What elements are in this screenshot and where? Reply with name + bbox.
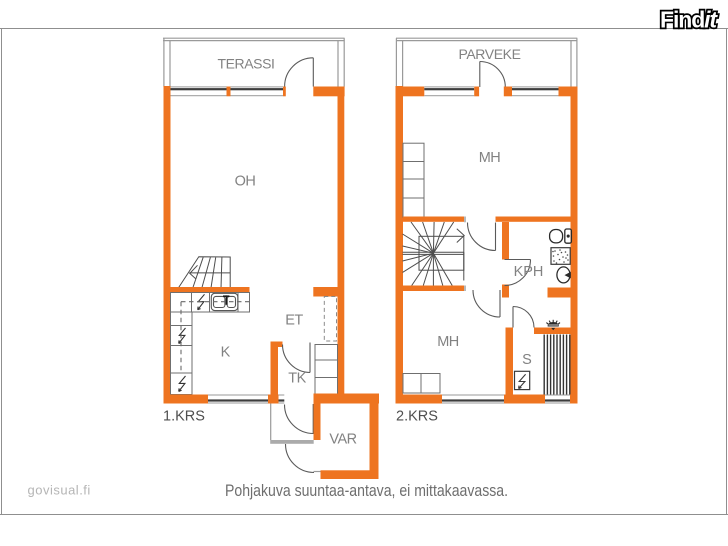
svg-text:MH: MH <box>437 334 459 350</box>
svg-text:Findit: Findit <box>660 7 718 33</box>
svg-text:OH: OH <box>235 174 256 190</box>
svg-text:S: S <box>522 352 532 368</box>
svg-text:govisual.fi: govisual.fi <box>28 483 91 498</box>
svg-text:TK: TK <box>288 371 306 387</box>
svg-text:2.KRS: 2.KRS <box>396 409 438 425</box>
svg-text:ET: ET <box>285 313 303 329</box>
svg-text:MH: MH <box>479 150 501 166</box>
svg-text:1.KRS: 1.KRS <box>163 409 205 425</box>
svg-text:TERASSI: TERASSI <box>217 56 274 72</box>
svg-text:PARVEKE: PARVEKE <box>458 46 520 62</box>
svg-text:VAR: VAR <box>329 432 356 448</box>
svg-text:Pohjakuva suuntaa-antava, ei m: Pohjakuva suuntaa-antava, ei mittakaavas… <box>225 482 508 500</box>
svg-text:KPH: KPH <box>514 264 544 280</box>
svg-text:K: K <box>221 345 231 361</box>
